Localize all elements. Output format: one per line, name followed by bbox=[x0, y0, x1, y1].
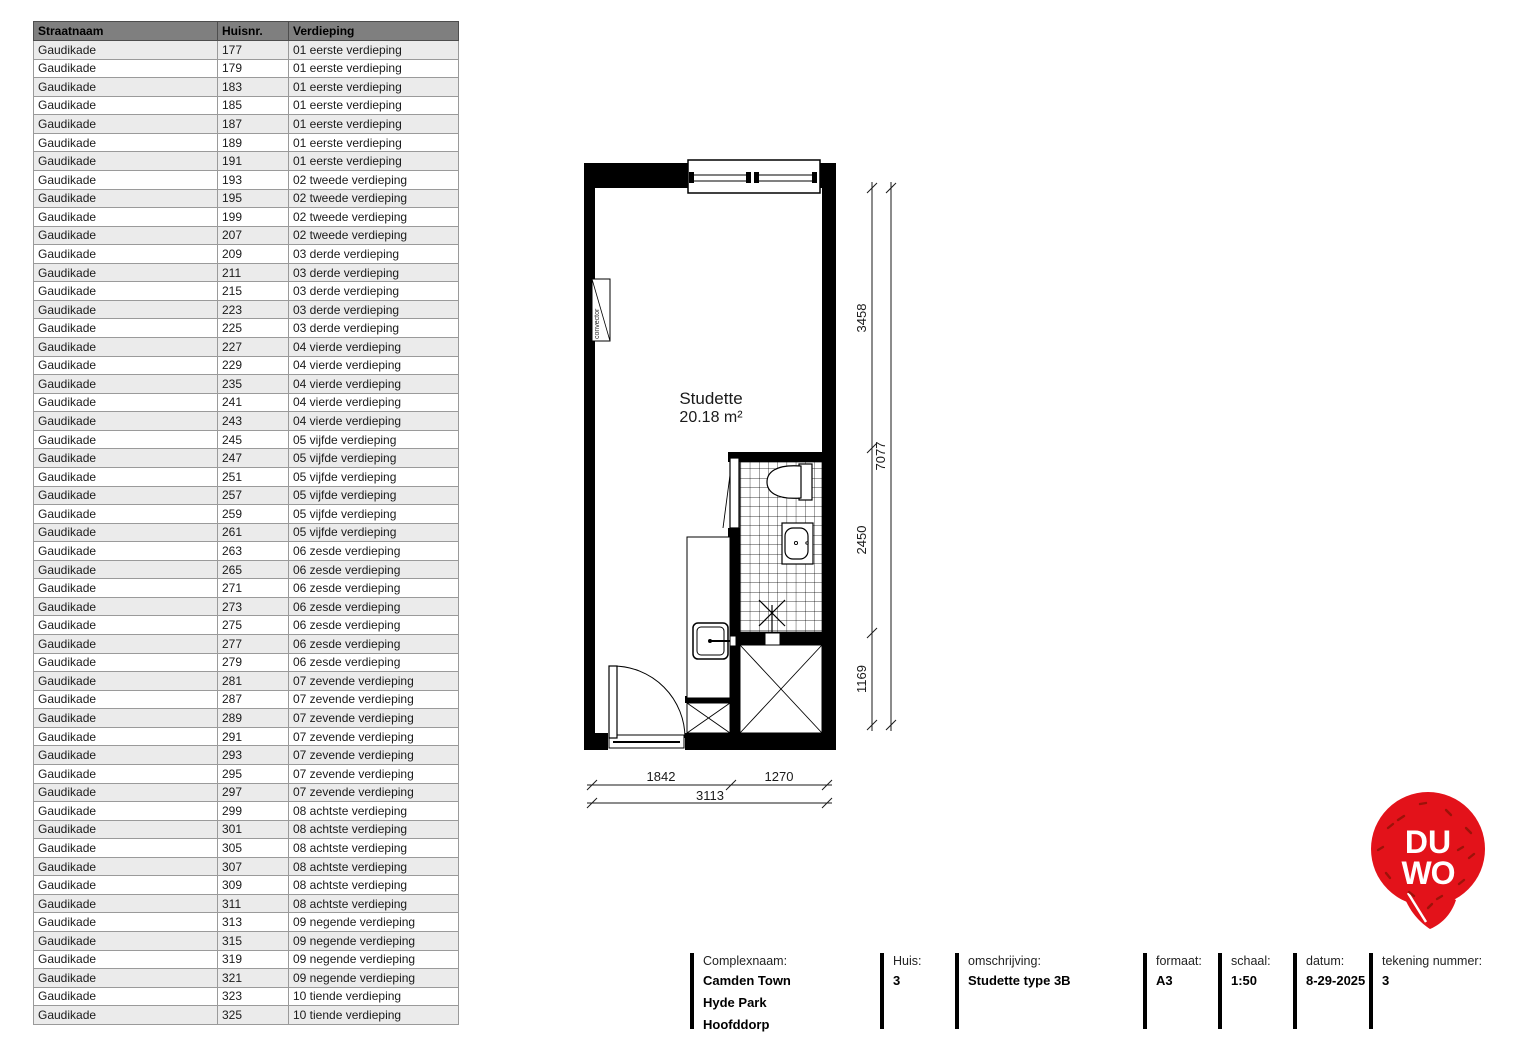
table-cell: 279 bbox=[218, 653, 289, 672]
omschrijving-value: Studette type 3B bbox=[968, 970, 1140, 992]
schaal-value: 1:50 bbox=[1231, 970, 1290, 992]
table-row: Gaudikade17701 eerste verdieping bbox=[34, 41, 459, 60]
table-cell: 227 bbox=[218, 338, 289, 357]
table-row: Gaudikade22503 derde verdieping bbox=[34, 319, 459, 338]
shaft-large bbox=[740, 645, 822, 733]
table-row: Gaudikade18501 eerste verdieping bbox=[34, 96, 459, 115]
address-table-header: Straatnaam Huisnr. Verdieping bbox=[34, 22, 459, 41]
table-row: Gaudikade20903 derde verdieping bbox=[34, 245, 459, 264]
table-cell: 309 bbox=[218, 876, 289, 895]
table-cell: Gaudikade bbox=[34, 449, 218, 468]
col-header-verdieping: Verdieping bbox=[289, 22, 459, 41]
dim-label-1169: 1169 bbox=[854, 665, 869, 693]
kitchen-counter bbox=[687, 537, 730, 698]
logo-text-wo: WO bbox=[1401, 855, 1454, 891]
table-cell: 287 bbox=[218, 690, 289, 709]
table-row: Gaudikade21103 derde verdieping bbox=[34, 263, 459, 282]
titleblock-section-omschrijving: omschrijving: Studette type 3B bbox=[955, 953, 1140, 1029]
table-cell: Gaudikade bbox=[34, 189, 218, 208]
table-row: Gaudikade28107 zevende verdieping bbox=[34, 672, 459, 691]
dim-label-2450: 2450 bbox=[854, 526, 869, 555]
formaat-label: formaat: bbox=[1156, 953, 1215, 970]
table-cell: 04 vierde verdieping bbox=[289, 393, 459, 412]
table-cell: 03 derde verdieping bbox=[289, 319, 459, 338]
complexnaam-label: Complexnaam: bbox=[703, 953, 875, 970]
table-cell: Gaudikade bbox=[34, 115, 218, 134]
table-cell: Gaudikade bbox=[34, 597, 218, 616]
table-cell: 183 bbox=[218, 78, 289, 97]
table-cell: 09 negende verdieping bbox=[289, 950, 459, 969]
table-cell: 241 bbox=[218, 393, 289, 412]
table-row: Gaudikade24304 vierde verdieping bbox=[34, 412, 459, 431]
address-table: Straatnaam Huisnr. Verdieping Gaudikade1… bbox=[33, 21, 459, 1025]
duwo-logo: DU WO bbox=[1368, 790, 1490, 930]
table-cell: 211 bbox=[218, 263, 289, 282]
schaal-label: schaal: bbox=[1231, 953, 1290, 970]
titleblock-section-formaat: formaat: A3 bbox=[1143, 953, 1215, 1029]
table-cell: 223 bbox=[218, 300, 289, 319]
table-cell: 09 negende verdieping bbox=[289, 932, 459, 951]
table-cell: 01 eerste verdieping bbox=[289, 96, 459, 115]
table-cell: 185 bbox=[218, 96, 289, 115]
table-cell: 01 eerste verdieping bbox=[289, 59, 459, 78]
table-cell: 06 zesde verdieping bbox=[289, 653, 459, 672]
table-cell: 01 eerste verdieping bbox=[289, 115, 459, 134]
table-cell: 189 bbox=[218, 133, 289, 152]
table-row: Gaudikade22704 vierde verdieping bbox=[34, 338, 459, 357]
table-cell: 179 bbox=[218, 59, 289, 78]
table-row: Gaudikade19302 tweede verdieping bbox=[34, 170, 459, 189]
table-cell: 06 zesde verdieping bbox=[289, 579, 459, 598]
table-cell: 265 bbox=[218, 560, 289, 579]
table-cell: 09 negende verdieping bbox=[289, 969, 459, 988]
wash-basin bbox=[782, 523, 813, 564]
table-cell: 05 vijfde verdieping bbox=[289, 523, 459, 542]
table-cell: Gaudikade bbox=[34, 208, 218, 227]
table-row: Gaudikade22303 derde verdieping bbox=[34, 300, 459, 319]
room-area-label: 20.18 m² bbox=[679, 409, 743, 426]
table-cell: 06 zesde verdieping bbox=[289, 635, 459, 654]
table-cell: Gaudikade bbox=[34, 356, 218, 375]
table-cell: 07 zevende verdieping bbox=[289, 709, 459, 728]
table-cell: Gaudikade bbox=[34, 969, 218, 988]
datum-value: 8-29-2025 bbox=[1306, 970, 1367, 992]
table-row: Gaudikade22904 vierde verdieping bbox=[34, 356, 459, 375]
table-row: Gaudikade32510 tiende verdieping bbox=[34, 1006, 459, 1025]
table-cell: 01 eerste verdieping bbox=[289, 152, 459, 171]
table-row: Gaudikade32310 tiende verdieping bbox=[34, 987, 459, 1006]
table-cell: 295 bbox=[218, 764, 289, 783]
dim-label-3113: 3113 bbox=[696, 788, 724, 803]
table-cell: 01 eerste verdieping bbox=[289, 133, 459, 152]
table-cell: 259 bbox=[218, 505, 289, 524]
table-cell: 209 bbox=[218, 245, 289, 264]
table-cell: Gaudikade bbox=[34, 746, 218, 765]
table-row: Gaudikade21503 derde verdieping bbox=[34, 282, 459, 301]
table-cell: 07 zevende verdieping bbox=[289, 764, 459, 783]
table-cell: 03 derde verdieping bbox=[289, 282, 459, 301]
table-cell: 307 bbox=[218, 857, 289, 876]
table-cell: Gaudikade bbox=[34, 727, 218, 746]
table-cell: 05 vijfde verdieping bbox=[289, 467, 459, 486]
table-cell: Gaudikade bbox=[34, 1006, 218, 1025]
shaft-small bbox=[687, 703, 730, 733]
table-cell: Gaudikade bbox=[34, 505, 218, 524]
table-cell: 273 bbox=[218, 597, 289, 616]
table-cell: 313 bbox=[218, 913, 289, 932]
table-cell: Gaudikade bbox=[34, 393, 218, 412]
table-row: Gaudikade29707 zevende verdieping bbox=[34, 783, 459, 802]
table-row: Gaudikade26506 zesde verdieping bbox=[34, 560, 459, 579]
table-cell: 02 tweede verdieping bbox=[289, 189, 459, 208]
table-cell: 275 bbox=[218, 616, 289, 635]
convector: convector bbox=[592, 279, 610, 341]
titleblock-section-schaal: schaal: 1:50 bbox=[1218, 953, 1290, 1029]
table-cell: 07 zevende verdieping bbox=[289, 690, 459, 709]
table-cell: 235 bbox=[218, 375, 289, 394]
table-cell: Gaudikade bbox=[34, 913, 218, 932]
table-row: Gaudikade28907 zevende verdieping bbox=[34, 709, 459, 728]
table-cell: Gaudikade bbox=[34, 839, 218, 858]
table-cell: 07 zevende verdieping bbox=[289, 672, 459, 691]
table-row: Gaudikade25705 vijfde verdieping bbox=[34, 486, 459, 505]
table-row: Gaudikade19101 eerste verdieping bbox=[34, 152, 459, 171]
table-cell: 01 eerste verdieping bbox=[289, 41, 459, 60]
table-row: Gaudikade24705 vijfde verdieping bbox=[34, 449, 459, 468]
table-row: Gaudikade17901 eerste verdieping bbox=[34, 59, 459, 78]
table-cell: 03 derde verdieping bbox=[289, 300, 459, 319]
table-cell: Gaudikade bbox=[34, 300, 218, 319]
table-cell: Gaudikade bbox=[34, 709, 218, 728]
huis-label: Huis: bbox=[893, 953, 952, 970]
table-row: Gaudikade20702 tweede verdieping bbox=[34, 226, 459, 245]
table-row: Gaudikade30108 achtste verdieping bbox=[34, 820, 459, 839]
table-row: Gaudikade27106 zesde verdieping bbox=[34, 579, 459, 598]
dim-label-7077: 7077 bbox=[873, 442, 888, 471]
table-cell: Gaudikade bbox=[34, 560, 218, 579]
table-cell: 04 vierde verdieping bbox=[289, 356, 459, 375]
table-cell: 243 bbox=[218, 412, 289, 431]
table-cell: 08 achtste verdieping bbox=[289, 857, 459, 876]
table-cell: Gaudikade bbox=[34, 690, 218, 709]
table-cell: 02 tweede verdieping bbox=[289, 208, 459, 227]
table-cell: 04 vierde verdieping bbox=[289, 375, 459, 394]
table-cell: 247 bbox=[218, 449, 289, 468]
table-cell: 271 bbox=[218, 579, 289, 598]
table-row: Gaudikade31909 negende verdieping bbox=[34, 950, 459, 969]
table-cell: 06 zesde verdieping bbox=[289, 597, 459, 616]
table-cell: Gaudikade bbox=[34, 430, 218, 449]
table-row: Gaudikade31509 negende verdieping bbox=[34, 932, 459, 951]
table-cell: 05 vijfde verdieping bbox=[289, 486, 459, 505]
table-cell: 06 zesde verdieping bbox=[289, 560, 459, 579]
room-name-label: Studette bbox=[679, 389, 742, 408]
dim-label-1842: 1842 bbox=[647, 769, 676, 784]
table-cell: 09 negende verdieping bbox=[289, 913, 459, 932]
window bbox=[688, 160, 820, 193]
table-cell: 291 bbox=[218, 727, 289, 746]
table-cell: 05 vijfde verdieping bbox=[289, 430, 459, 449]
table-row: Gaudikade31309 negende verdieping bbox=[34, 913, 459, 932]
table-cell: Gaudikade bbox=[34, 672, 218, 691]
table-cell: 257 bbox=[218, 486, 289, 505]
entrance-door bbox=[608, 666, 685, 750]
table-cell: Gaudikade bbox=[34, 152, 218, 171]
table-row: Gaudikade31108 achtste verdieping bbox=[34, 894, 459, 913]
complexnaam-line-3: Hoofddorp bbox=[703, 1014, 875, 1036]
table-cell: Gaudikade bbox=[34, 783, 218, 802]
table-cell: 04 vierde verdieping bbox=[289, 412, 459, 431]
table-cell: 323 bbox=[218, 987, 289, 1006]
table-cell: 07 zevende verdieping bbox=[289, 783, 459, 802]
table-row: Gaudikade25905 vijfde verdieping bbox=[34, 505, 459, 524]
table-cell: Gaudikade bbox=[34, 133, 218, 152]
table-cell: 251 bbox=[218, 467, 289, 486]
table-cell: Gaudikade bbox=[34, 226, 218, 245]
table-cell: Gaudikade bbox=[34, 950, 218, 969]
table-cell: 321 bbox=[218, 969, 289, 988]
col-header-straatnaam: Straatnaam bbox=[34, 22, 218, 41]
formaat-value: A3 bbox=[1156, 970, 1215, 992]
table-cell: 04 vierde verdieping bbox=[289, 338, 459, 357]
table-cell: 07 zevende verdieping bbox=[289, 746, 459, 765]
table-cell: 07 zevende verdieping bbox=[289, 727, 459, 746]
table-cell: Gaudikade bbox=[34, 412, 218, 431]
header-row: Straatnaam Huisnr. Verdieping bbox=[34, 22, 459, 41]
table-cell: Gaudikade bbox=[34, 319, 218, 338]
table-cell: 277 bbox=[218, 635, 289, 654]
tekening-nummer-value: 3 bbox=[1382, 970, 1519, 992]
convector-label: convector bbox=[594, 308, 601, 339]
table-cell: Gaudikade bbox=[34, 245, 218, 264]
table-cell: 207 bbox=[218, 226, 289, 245]
table-cell: Gaudikade bbox=[34, 170, 218, 189]
table-cell: Gaudikade bbox=[34, 802, 218, 821]
table-row: Gaudikade23504 vierde verdieping bbox=[34, 375, 459, 394]
table-cell: Gaudikade bbox=[34, 282, 218, 301]
table-cell: Gaudikade bbox=[34, 857, 218, 876]
table-cell: 08 achtste verdieping bbox=[289, 820, 459, 839]
table-cell: Gaudikade bbox=[34, 635, 218, 654]
table-cell: Gaudikade bbox=[34, 820, 218, 839]
table-cell: Gaudikade bbox=[34, 375, 218, 394]
table-row: Gaudikade19902 tweede verdieping bbox=[34, 208, 459, 227]
table-cell: 10 tiende verdieping bbox=[289, 987, 459, 1006]
table-row: Gaudikade27706 zesde verdieping bbox=[34, 635, 459, 654]
table-row: Gaudikade19502 tweede verdieping bbox=[34, 189, 459, 208]
table-cell: 301 bbox=[218, 820, 289, 839]
huis-value: 3 bbox=[893, 970, 952, 992]
table-row: Gaudikade27906 zesde verdieping bbox=[34, 653, 459, 672]
table-cell: 193 bbox=[218, 170, 289, 189]
table-cell: Gaudikade bbox=[34, 764, 218, 783]
table-row: Gaudikade30708 achtste verdieping bbox=[34, 857, 459, 876]
table-cell: 325 bbox=[218, 1006, 289, 1025]
titleblock-section-tekening-nummer: tekening nummer: 3 bbox=[1369, 953, 1519, 1029]
table-cell: Gaudikade bbox=[34, 467, 218, 486]
table-row: Gaudikade24505 vijfde verdieping bbox=[34, 430, 459, 449]
table-cell: Gaudikade bbox=[34, 932, 218, 951]
table-cell: Gaudikade bbox=[34, 338, 218, 357]
table-cell: 215 bbox=[218, 282, 289, 301]
table-row: Gaudikade28707 zevende verdieping bbox=[34, 690, 459, 709]
col-header-huisnr: Huisnr. bbox=[218, 22, 289, 41]
table-row: Gaudikade29908 achtste verdieping bbox=[34, 802, 459, 821]
table-cell: 289 bbox=[218, 709, 289, 728]
table-row: Gaudikade26306 zesde verdieping bbox=[34, 542, 459, 561]
table-cell: 187 bbox=[218, 115, 289, 134]
table-cell: 199 bbox=[218, 208, 289, 227]
dim-label-1270: 1270 bbox=[765, 769, 794, 784]
table-cell: 319 bbox=[218, 950, 289, 969]
table-cell: 05 vijfde verdieping bbox=[289, 505, 459, 524]
titleblock-section-datum: datum: 8-29-2025 bbox=[1293, 953, 1367, 1029]
table-cell: 08 achtste verdieping bbox=[289, 802, 459, 821]
dim-label-3458: 3458 bbox=[854, 304, 869, 333]
table-cell: 08 achtste verdieping bbox=[289, 894, 459, 913]
table-row: Gaudikade27506 zesde verdieping bbox=[34, 616, 459, 635]
table-cell: Gaudikade bbox=[34, 41, 218, 60]
table-cell: Gaudikade bbox=[34, 579, 218, 598]
table-cell: 297 bbox=[218, 783, 289, 802]
table-cell: 311 bbox=[218, 894, 289, 913]
table-cell: 293 bbox=[218, 746, 289, 765]
titleblock-section-complexnaam: Complexnaam: Camden Town Hyde Park Hoofd… bbox=[690, 953, 875, 1029]
table-cell: 01 eerste verdieping bbox=[289, 78, 459, 97]
table-body: Gaudikade17701 eerste verdiepingGaudikad… bbox=[34, 41, 459, 1025]
table-cell: 225 bbox=[218, 319, 289, 338]
omschrijving-label: omschrijving: bbox=[968, 953, 1140, 970]
table-cell: Gaudikade bbox=[34, 987, 218, 1006]
table-cell: 315 bbox=[218, 932, 289, 951]
table-cell: Gaudikade bbox=[34, 523, 218, 542]
tekening-nummer-label: tekening nummer: bbox=[1382, 953, 1519, 970]
table-cell: 02 tweede verdieping bbox=[289, 170, 459, 189]
table-cell: 191 bbox=[218, 152, 289, 171]
table-row: Gaudikade27306 zesde verdieping bbox=[34, 597, 459, 616]
table-cell: Gaudikade bbox=[34, 263, 218, 282]
bathroom-door bbox=[723, 458, 739, 528]
table-cell: 299 bbox=[218, 802, 289, 821]
table-row: Gaudikade18901 eerste verdieping bbox=[34, 133, 459, 152]
table-cell: Gaudikade bbox=[34, 486, 218, 505]
table-cell: 195 bbox=[218, 189, 289, 208]
table-cell: 177 bbox=[218, 41, 289, 60]
table-row: Gaudikade24104 vierde verdieping bbox=[34, 393, 459, 412]
table-cell: 10 tiende verdieping bbox=[289, 1006, 459, 1025]
table-cell: 229 bbox=[218, 356, 289, 375]
table-cell: Gaudikade bbox=[34, 616, 218, 635]
table-cell: 03 derde verdieping bbox=[289, 263, 459, 282]
table-cell: 08 achtste verdieping bbox=[289, 876, 459, 895]
table-row: Gaudikade25105 vijfde verdieping bbox=[34, 467, 459, 486]
table-row: Gaudikade18701 eerste verdieping bbox=[34, 115, 459, 134]
table-cell: 261 bbox=[218, 523, 289, 542]
table-cell: 08 achtste verdieping bbox=[289, 839, 459, 858]
table-cell: Gaudikade bbox=[34, 894, 218, 913]
table-cell: 281 bbox=[218, 672, 289, 691]
table-row: Gaudikade30908 achtste verdieping bbox=[34, 876, 459, 895]
table-cell: 305 bbox=[218, 839, 289, 858]
table-row: Gaudikade29307 zevende verdieping bbox=[34, 746, 459, 765]
table-row: Gaudikade26105 vijfde verdieping bbox=[34, 523, 459, 542]
table-cell: 02 tweede verdieping bbox=[289, 226, 459, 245]
floorplan-drawing: convector Studette 20.18 m² bbox=[575, 155, 920, 815]
complexnaam-line-1: Camden Town bbox=[703, 970, 875, 992]
complexnaam-line-2: Hyde Park bbox=[703, 992, 875, 1014]
table-cell: 03 derde verdieping bbox=[289, 245, 459, 264]
titleblock-section-huis: Huis: 3 bbox=[880, 953, 952, 1029]
table-cell: 263 bbox=[218, 542, 289, 561]
table-cell: 245 bbox=[218, 430, 289, 449]
table-cell: Gaudikade bbox=[34, 653, 218, 672]
table-row: Gaudikade18301 eerste verdieping bbox=[34, 78, 459, 97]
table-cell: Gaudikade bbox=[34, 96, 218, 115]
table-cell: 05 vijfde verdieping bbox=[289, 449, 459, 468]
table-cell: 06 zesde verdieping bbox=[289, 616, 459, 635]
table-row: Gaudikade29507 zevende verdieping bbox=[34, 764, 459, 783]
table-cell: Gaudikade bbox=[34, 542, 218, 561]
table-row: Gaudikade29107 zevende verdieping bbox=[34, 727, 459, 746]
table-row: Gaudikade30508 achtste verdieping bbox=[34, 839, 459, 858]
table-cell: Gaudikade bbox=[34, 876, 218, 895]
table-row: Gaudikade32109 negende verdieping bbox=[34, 969, 459, 988]
table-cell: Gaudikade bbox=[34, 78, 218, 97]
table-cell: 06 zesde verdieping bbox=[289, 542, 459, 561]
datum-label: datum: bbox=[1306, 953, 1367, 970]
table-cell: Gaudikade bbox=[34, 59, 218, 78]
